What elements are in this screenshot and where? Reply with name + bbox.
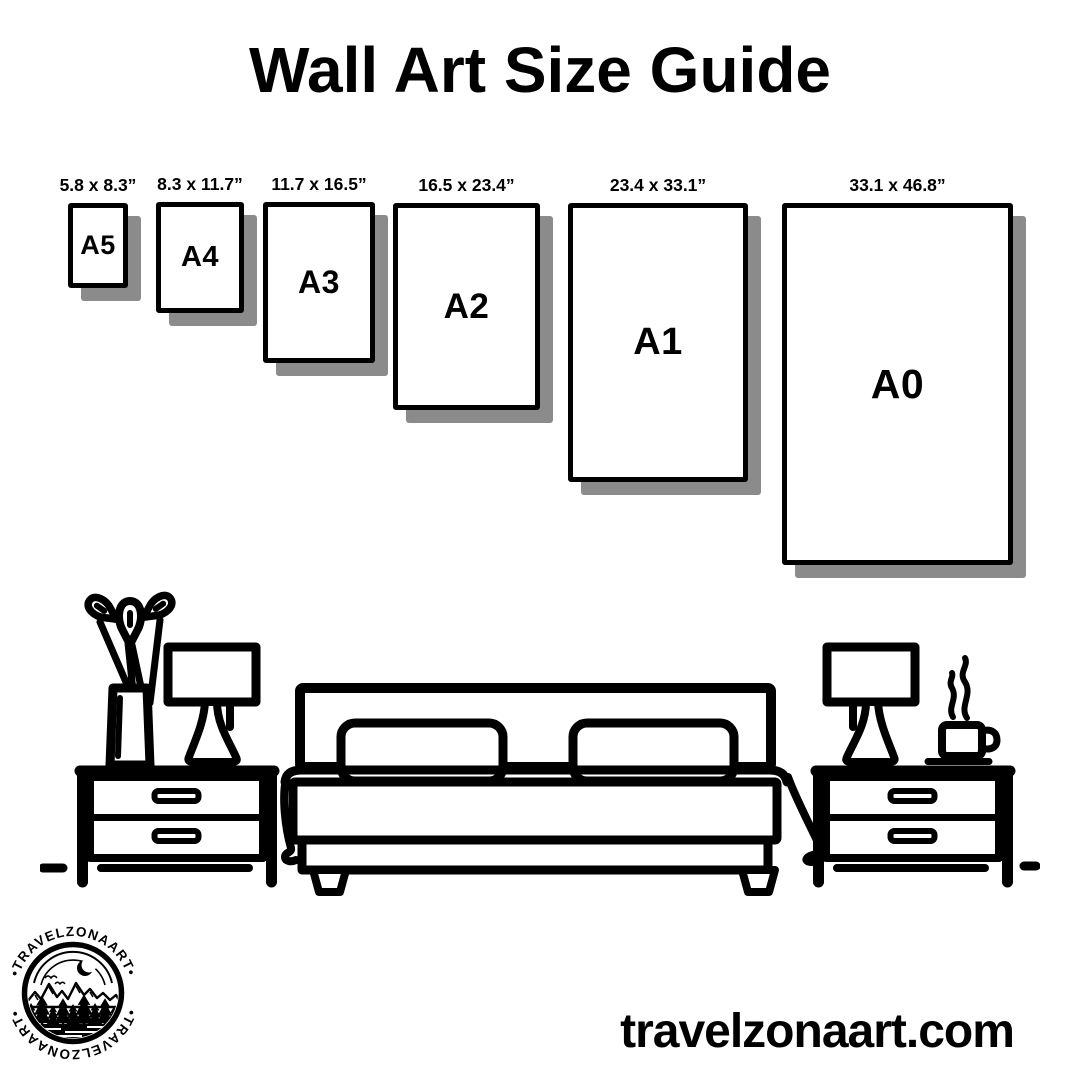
double-bed-icon bbox=[284, 688, 821, 892]
size-item: 8.3 x 11.7” A4 bbox=[156, 202, 244, 313]
brand-logo: •TRAVELZONAART• •TRAVELZONAART• bbox=[3, 923, 143, 1063]
paper-rectangle: A2 bbox=[393, 203, 540, 410]
size-dimensions-label: 11.7 x 16.5” bbox=[271, 174, 366, 195]
size-item: 23.4 x 33.1” A1 bbox=[568, 203, 748, 482]
sunrise-arcs-icon bbox=[34, 952, 112, 985]
size-dimensions-label: 5.8 x 8.3” bbox=[60, 175, 137, 196]
nightstand-right-icon bbox=[816, 771, 1010, 882]
size-guide: 5.8 x 8.3” A5 8.3 x 11.7” A4 11.7 x 16.5… bbox=[0, 0, 1080, 600]
size-code-label: A4 bbox=[181, 241, 219, 274]
paper-rectangle: A4 bbox=[156, 202, 244, 313]
website-url: travelzonaart.com bbox=[592, 1004, 1042, 1059]
size-dimensions-label: 33.1 x 46.8” bbox=[849, 175, 945, 196]
size-code-label: A3 bbox=[298, 264, 340, 301]
table-lamp-right-icon bbox=[827, 647, 915, 762]
paper-rectangle: A5 bbox=[68, 203, 128, 288]
paper-rectangle: A0 bbox=[782, 203, 1013, 565]
size-item: 5.8 x 8.3” A5 bbox=[68, 203, 128, 288]
size-code-label: A1 bbox=[633, 321, 683, 364]
paper-rectangle: A1 bbox=[568, 203, 748, 482]
birds-icon bbox=[45, 976, 65, 984]
poster: Wall Art Size Guide 5.8 x 8.3” A5 8.3 x … bbox=[0, 0, 1080, 1080]
size-item: 16.5 x 23.4” A2 bbox=[393, 203, 540, 410]
size-item: 33.1 x 46.8” A0 bbox=[782, 203, 1013, 565]
flower-vase-icon bbox=[85, 592, 176, 765]
size-code-label: A2 bbox=[444, 287, 490, 327]
table-lamp-left-icon bbox=[168, 647, 256, 762]
bedroom-scene bbox=[40, 585, 1040, 900]
nightstand-left-icon bbox=[80, 771, 274, 882]
paper-rectangle: A3 bbox=[263, 202, 375, 363]
coffee-cup-icon bbox=[928, 658, 997, 762]
size-dimensions-label: 16.5 x 23.4” bbox=[418, 175, 514, 196]
size-item: 11.7 x 16.5” A3 bbox=[263, 202, 375, 363]
size-dimensions-label: 8.3 x 11.7” bbox=[157, 174, 243, 195]
size-dimensions-label: 23.4 x 33.1” bbox=[610, 175, 706, 196]
size-code-label: A0 bbox=[871, 361, 924, 408]
size-code-label: A5 bbox=[80, 230, 116, 261]
